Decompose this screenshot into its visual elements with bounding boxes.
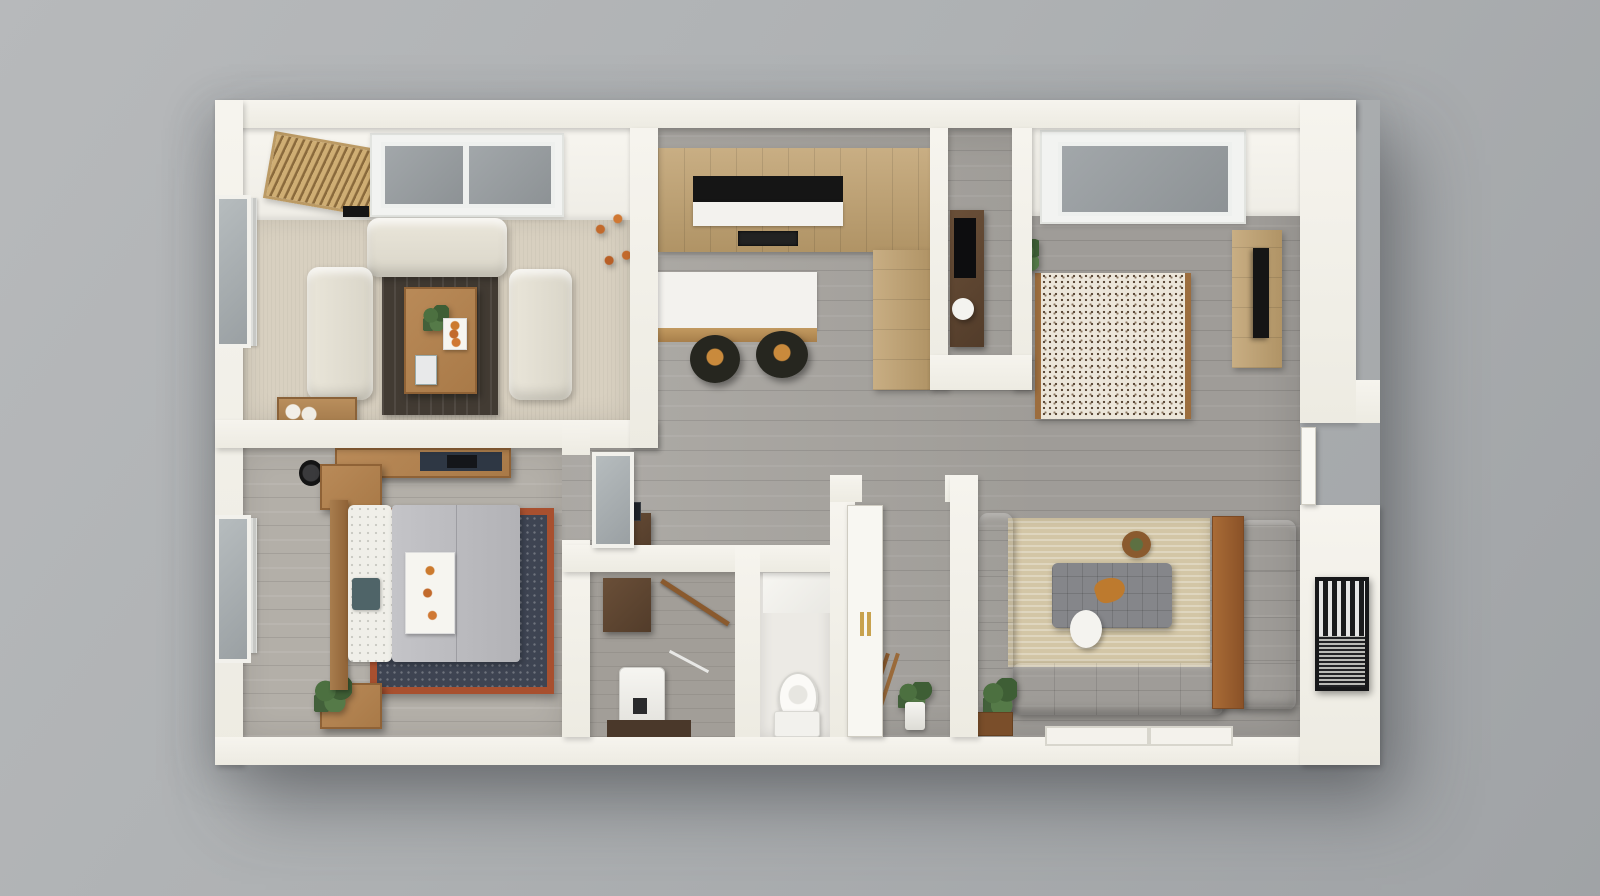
coffee-table-books bbox=[415, 355, 437, 385]
cream-loveseat-right bbox=[509, 269, 572, 400]
artwork-lower bbox=[1319, 636, 1365, 687]
marble-panel bbox=[763, 573, 830, 613]
wall-tv bbox=[1253, 248, 1269, 338]
coffee-table-tray bbox=[443, 318, 467, 350]
cooktop-hood bbox=[693, 176, 843, 204]
bar-stool-right bbox=[756, 331, 808, 378]
entry-plant-pot bbox=[905, 702, 925, 730]
wood-console bbox=[1212, 516, 1244, 709]
living-room-window bbox=[215, 195, 251, 348]
cream-sofa bbox=[367, 218, 507, 277]
bedroom-window bbox=[215, 515, 251, 663]
oven bbox=[738, 231, 798, 246]
ceiling-vent bbox=[343, 206, 369, 217]
kitchen-counter bbox=[693, 202, 843, 226]
wall-entry-top-a bbox=[830, 475, 862, 502]
skylight-glass-right bbox=[465, 142, 555, 208]
window-seat-left bbox=[1045, 726, 1149, 746]
island-countertop bbox=[645, 272, 817, 330]
entry-door-open bbox=[847, 505, 883, 737]
wall-living-bedroom bbox=[215, 420, 658, 448]
window-seat-right bbox=[1149, 726, 1233, 746]
side-table bbox=[1070, 610, 1102, 648]
wall-utility-toilet-top bbox=[562, 545, 855, 572]
media-skylight-glass bbox=[1058, 142, 1232, 216]
sectional-bottom bbox=[1012, 663, 1224, 715]
artwork-upper bbox=[1319, 581, 1365, 636]
floor-plan-scene bbox=[0, 0, 1600, 896]
entry-door-handle-a bbox=[860, 612, 864, 636]
framed-artwork bbox=[1315, 577, 1369, 691]
apartment-plan bbox=[215, 100, 1380, 765]
utility-mat bbox=[607, 720, 691, 737]
wall-entry-right bbox=[950, 475, 978, 737]
breakfast-tray bbox=[405, 552, 455, 634]
wall-bedroom-right-upper bbox=[562, 420, 590, 455]
speckled-rug bbox=[1035, 273, 1191, 419]
headboard bbox=[330, 500, 348, 690]
sofa-right bbox=[1240, 520, 1296, 710]
teal-cushion bbox=[352, 578, 380, 610]
bar-stool-left bbox=[690, 335, 740, 383]
cream-loveseat-left bbox=[307, 267, 373, 400]
wall-exterior-right-upper bbox=[1300, 100, 1356, 423]
plant-box bbox=[977, 712, 1013, 736]
wall-nook-bottom bbox=[930, 355, 1032, 390]
nook-monitor bbox=[954, 218, 976, 278]
wall-exterior-right-flange bbox=[1356, 380, 1380, 423]
exterior-side-door bbox=[1301, 427, 1316, 505]
wall-nook-right bbox=[1012, 128, 1032, 390]
wall-nook-left bbox=[930, 128, 948, 390]
toilet-tank bbox=[774, 711, 820, 737]
wall-exterior-top bbox=[215, 100, 1356, 128]
appliance-panel bbox=[633, 698, 647, 714]
family-room-plant bbox=[983, 678, 1017, 716]
round-basket bbox=[1122, 531, 1151, 558]
pantry-cabinet bbox=[873, 250, 930, 390]
utility-cabinet bbox=[603, 578, 651, 632]
laundry-appliance bbox=[619, 667, 665, 727]
skylight-glass-left bbox=[381, 142, 467, 208]
desk-laptop bbox=[447, 455, 477, 468]
bedroom-glass-door bbox=[592, 452, 634, 548]
entry-door-handle-b bbox=[867, 612, 871, 636]
wall-kitchen-stub bbox=[630, 128, 658, 448]
nook-desk-lamp bbox=[952, 298, 974, 320]
wall-toilet-left bbox=[735, 545, 760, 737]
